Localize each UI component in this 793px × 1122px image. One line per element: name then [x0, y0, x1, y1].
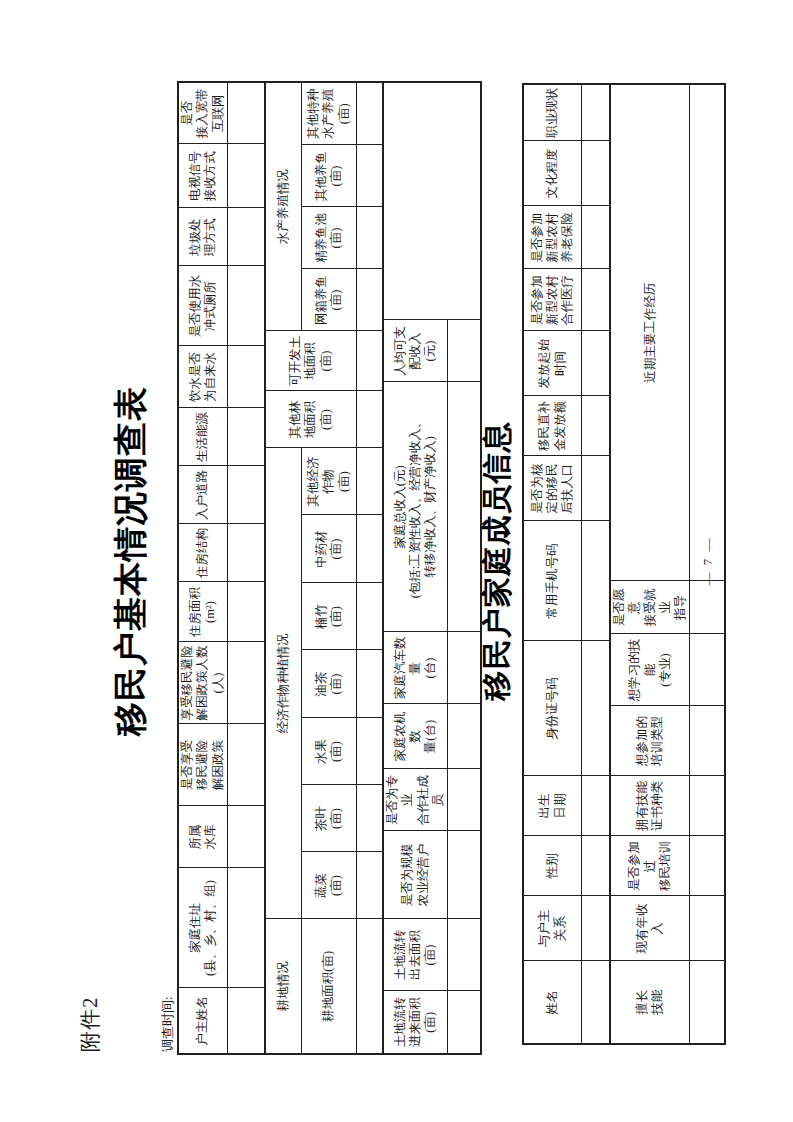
data-cell: [448, 632, 482, 704]
data-cell: [448, 382, 482, 632]
survey-time-label: 调查时间:: [159, 996, 177, 1052]
section-cell-farmland: 耕地情况: [265, 919, 302, 1054]
table1-title: 移民户基本情况调查表: [108, 0, 154, 1122]
header-cell: 现有年收入: [610, 896, 690, 961]
header-cell: 性别: [523, 836, 582, 896]
header-cell: 网箱养鱼 (亩): [302, 269, 357, 331]
header-cell: 职业现状: [523, 84, 582, 141]
header-cell: 其他养鱼 (亩): [302, 145, 357, 207]
header-cell: 擅长 技能: [610, 961, 690, 1044]
header-cell: 想参加的 培训类型: [610, 706, 690, 776]
attachment-label: 附件2: [76, 997, 104, 1053]
header-cell: 垃圾处 理方式: [178, 208, 227, 266]
header-cell: 移民直补 金发放额: [523, 396, 582, 456]
header-cell: 家庭汽车数量 (台): [383, 632, 448, 704]
header-cell: 土地流转 进来面积 (亩): [383, 991, 448, 1054]
header-cell: 家庭总收入(元) (包括:工资性收入、经营净收入、 转移净收入、财产净收入): [383, 382, 448, 632]
header-cell: 电视信号 接收方式: [178, 144, 227, 208]
header-cell: 家庭农机数 量(台): [383, 704, 448, 769]
header-cell-work-history: 近期主要工作经历: [610, 84, 690, 581]
header-cell: 想学习的技能 (专业): [610, 634, 690, 706]
header-cell: 住房结构: [178, 524, 227, 582]
merged-blank-cell: [383, 82, 481, 320]
page-canvas: 附件2 移民户基本情况调查表 调查时间: 户主姓名 家庭住址 (县、乡、村、组)…: [0, 0, 793, 1122]
header-cell: 是否参加 新型农村 养老保险: [523, 206, 582, 269]
header-cell: 楠竹 (亩): [302, 583, 357, 650]
header-cell: 家庭住址 (县、乡、村、组): [178, 868, 227, 988]
header-cell: 身份证号码: [523, 641, 582, 776]
section-cell-aquaculture: 水产养殖情况: [265, 82, 302, 331]
header-cell: 生活能源: [178, 408, 227, 466]
header-cell: 饮水是否 为自来水: [178, 346, 227, 408]
economy-band: 土地流转 进来面积 (亩) 土地流转 出去面积 (亩) 是否为规模 农业经营户 …: [382, 81, 482, 1055]
section-cell-cash-crops: 经济作物种植情况: [265, 448, 302, 919]
header-cell: 入户道路: [178, 466, 227, 524]
header-cell: 是否使用水 冲式厕所: [178, 266, 227, 346]
member-info-band: 姓名 与户主 关系 性别 出生 日期 身份证号码 常用手机号码 是否为核 定的移…: [522, 83, 616, 1045]
header-cell: 享受移民避险 解困政策人数 (人): [178, 642, 227, 724]
table2-title: 移民户家庭成员信息: [477, 0, 518, 1122]
header-cell: 是否 接入宽带 互联网: [178, 82, 227, 144]
data-cell: [448, 704, 482, 769]
scanned-document-page: { "page": { "attachment_label": "附件2", "…: [0, 0, 793, 1122]
header-cell: 是否为专业 合作社成员: [383, 769, 448, 831]
header-cell: 拥有技能 证书种类: [610, 776, 690, 836]
header-cell: 户主姓名: [178, 988, 227, 1054]
header-cell: 其他特种 水产养殖 (亩): [302, 82, 357, 145]
header-cell: 发放起始 时间: [523, 331, 582, 396]
header-cell: 精养鱼池 (亩): [302, 207, 357, 269]
header-cell: 是否参加过 移民培训: [610, 836, 690, 896]
header-cell: 常用手机号码: [523, 521, 582, 641]
header-cell: 文化程度: [523, 141, 582, 206]
header-cell: 住房面积 (m²): [178, 582, 227, 642]
header-cell: 中药材 (亩): [302, 515, 357, 583]
header-cell: 与户主 关系: [523, 896, 582, 961]
land-planting-band: 耕地情况 经济作物种植情况 其他林 地面积 (亩) 可开发土 地面积 (亩) 水…: [264, 81, 391, 1055]
header-cell: 人均可支 配收入 (元): [383, 320, 448, 382]
data-cell: [448, 991, 482, 1054]
header-cell: 所属 水库: [178, 806, 227, 868]
header-cell: 姓名: [523, 961, 582, 1044]
header-cell: 油茶 (亩): [302, 650, 357, 718]
header-cell: 蔬菜 (亩): [302, 852, 357, 919]
data-cell: [448, 919, 482, 991]
header-cell: 水果 (亩): [302, 718, 357, 785]
header-cell-other-forest: 其他林 地面积 (亩): [265, 391, 357, 448]
header-cell: 是否为核 定的移民 后扶人口: [523, 456, 582, 521]
header-cell: 茶叶 (亩): [302, 785, 357, 852]
header-cell: 耕地面积(亩): [302, 919, 357, 1054]
header-cell: 是否享受 移民避险 解困政策: [178, 724, 227, 806]
data-cell: [448, 831, 482, 919]
data-cell: [448, 320, 482, 382]
page-number: — 7 —: [700, 0, 716, 1122]
header-cell: 是否为规模 农业经营户: [383, 831, 448, 919]
header-cell: 其他经济 作物 (亩): [302, 448, 357, 515]
header-cell: 是否参加 新型农村 合作医疗: [523, 269, 582, 331]
header-cell: 出生 日期: [523, 776, 582, 836]
basic-info-header-band: 户主姓名 家庭住址 (县、乡、村、组) 所属 水库 是否享受 移民避险 解困政策…: [177, 81, 272, 1055]
header-cell-developable-land: 可开发土 地面积 (亩): [265, 331, 357, 391]
header-cell: 土地流转 出去面积 (亩): [383, 919, 448, 991]
data-cell: [448, 769, 482, 831]
header-cell: 是否愿意 接受就业 指导: [610, 581, 690, 634]
